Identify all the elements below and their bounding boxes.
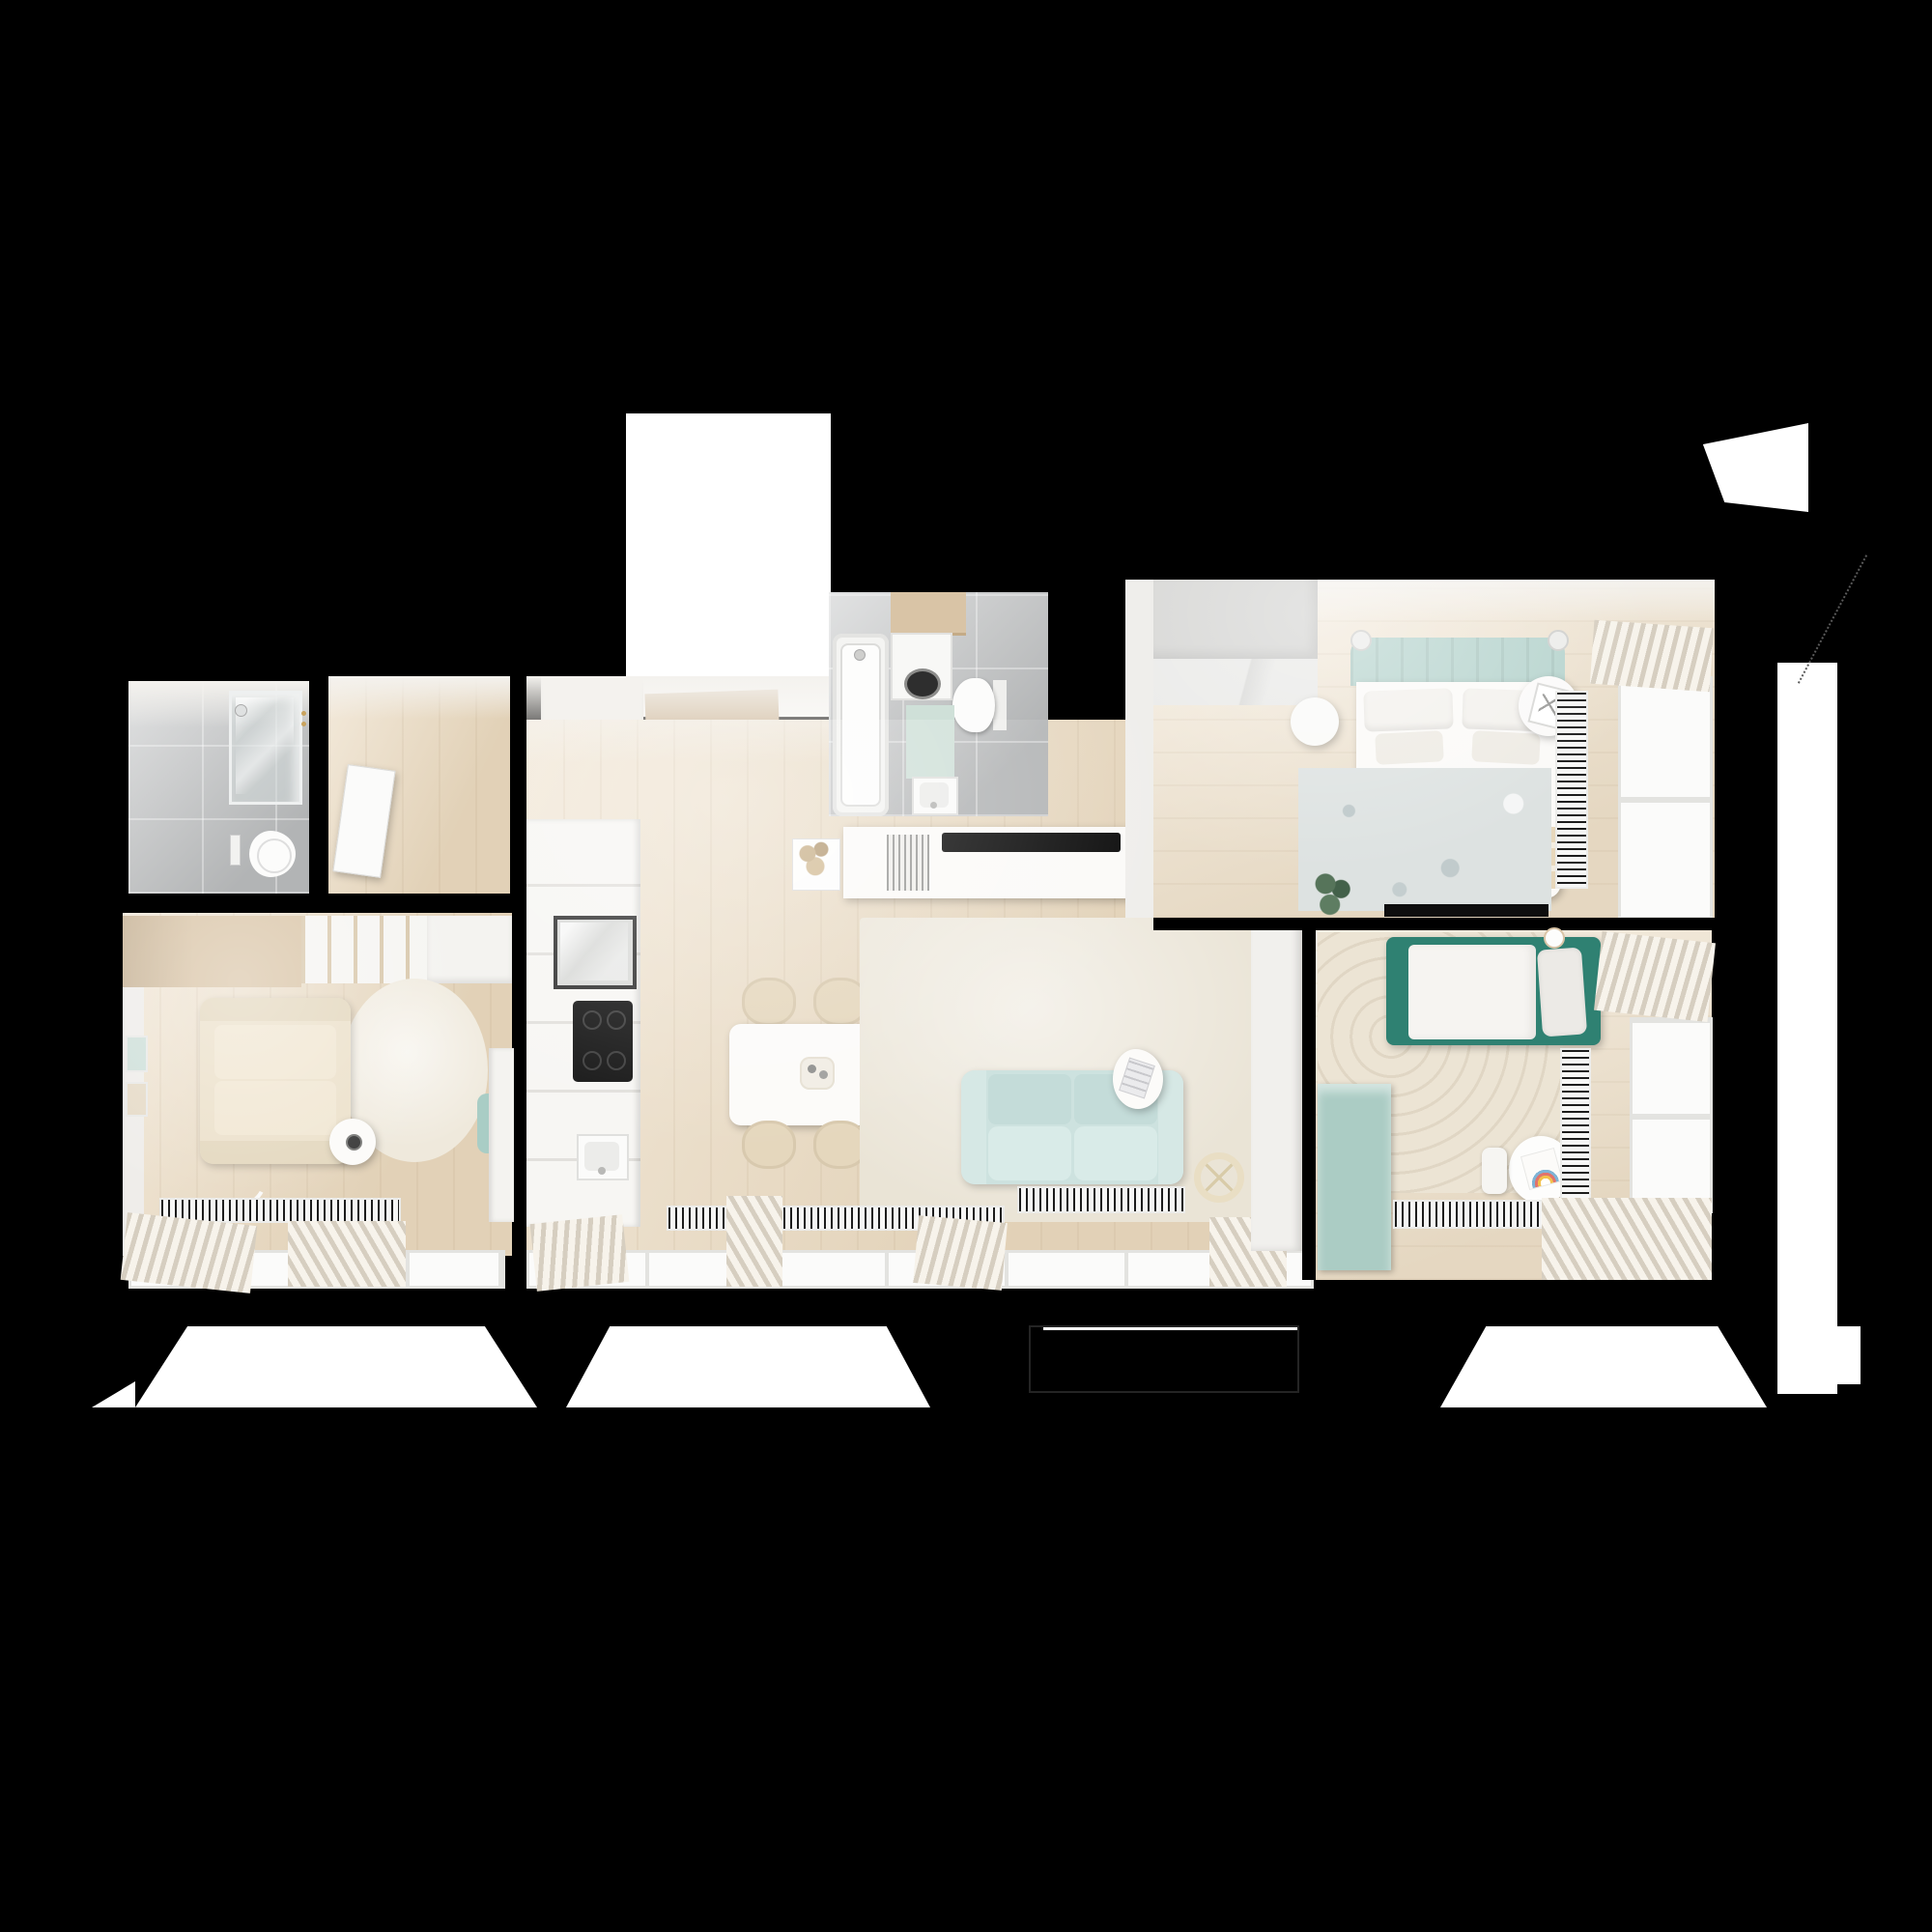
pillow-small [1375, 730, 1444, 765]
radiator [1393, 1200, 1544, 1229]
plant-icon [1310, 866, 1354, 918]
entrance-alcove [626, 413, 831, 717]
kids-bench-teal [1318, 1084, 1391, 1270]
wall-tv [1384, 904, 1548, 917]
kids-pillow [1537, 948, 1587, 1037]
dining-chair [742, 978, 796, 1026]
toilet2-bowl [952, 678, 995, 732]
curtains [913, 1215, 1008, 1291]
glass-cabinet-glint [560, 923, 628, 980]
washer-drum-icon [904, 668, 941, 699]
centerpiece-dot [808, 1065, 816, 1073]
curtains [288, 1221, 406, 1287]
office-cabinet [427, 916, 512, 983]
office-sofa-armrest [200, 998, 351, 1021]
pillow-small [1471, 730, 1541, 765]
burner-icon [607, 1051, 626, 1070]
cooktop [573, 1001, 633, 1082]
wall-frame-beige [126, 1082, 148, 1117]
office-desk [489, 1048, 514, 1222]
towel-hook-icon [301, 722, 306, 726]
bathtub-inner [840, 643, 881, 807]
pillow [1363, 688, 1453, 731]
wardrobe-grey-lower [1153, 659, 1318, 705]
plant-icon [796, 837, 835, 879]
toilet2-tank [993, 680, 1007, 730]
curtains [1542, 1198, 1712, 1280]
bedroom-divider-wall [1153, 918, 1715, 930]
tap-icon [598, 1167, 606, 1175]
tv [942, 833, 1121, 852]
bedroom-wall-face [1125, 580, 1153, 918]
radiator [1555, 691, 1588, 889]
wall-lamp-icon [1548, 630, 1569, 651]
window-kids [1630, 1017, 1713, 1213]
cup-icon [1544, 927, 1565, 949]
nightstand [1291, 697, 1339, 746]
sofa-back-cushion [988, 1074, 1071, 1124]
curtains [1590, 620, 1714, 692]
wood-shelf [891, 592, 966, 636]
edge-sliver [92, 1381, 135, 1407]
floor-plan-render [0, 0, 1932, 1932]
office-sofa-cushion [214, 1081, 336, 1135]
kids-bed-duvet [1408, 945, 1536, 1039]
hallway-wall-top [328, 676, 510, 719]
parapet-outline [1029, 1325, 1299, 1393]
curtains [1594, 931, 1716, 1022]
roof-wedge [1689, 423, 1808, 520]
right-white-strip [1777, 663, 1837, 1394]
burner-icon [607, 1010, 626, 1030]
wall-lamp-icon [1350, 630, 1372, 651]
burner-icon [582, 1051, 602, 1070]
centerpiece [800, 1057, 835, 1090]
wardrobe-grey [1153, 580, 1318, 659]
sofa-armrest [961, 1070, 986, 1184]
towel-hook-icon [301, 711, 306, 716]
wall-core [1302, 918, 1316, 1280]
wall-frame-mint [126, 1036, 148, 1072]
tap-icon [930, 802, 937, 809]
balcony-trapezoid [1440, 1326, 1767, 1407]
office-shelf-boxes [301, 916, 427, 983]
balcony-strip-right [1814, 1326, 1861, 1384]
wall-face-white [1251, 918, 1302, 1251]
floor-lamp-icon [1194, 1152, 1244, 1203]
office-sofa-cushion [214, 1025, 336, 1079]
kitchen-wall-top [526, 676, 831, 763]
speaker-grille-icon [887, 835, 929, 891]
radiator [1017, 1186, 1185, 1213]
burner-icon [582, 1010, 602, 1030]
cup-icon [346, 1134, 362, 1151]
curtains [530, 1214, 630, 1292]
shower-head-icon [235, 704, 247, 717]
toilet-seat-line [257, 838, 292, 873]
dining-chair [742, 1121, 796, 1169]
sofa-seat-cushion [988, 1126, 1071, 1180]
balcony-trapezoid [135, 1326, 537, 1407]
balcony-trapezoid [566, 1326, 930, 1407]
centerpiece-dot [819, 1070, 828, 1079]
window-bedroom [1618, 676, 1713, 920]
sofa-seat-cushion [1074, 1126, 1157, 1180]
kids-stool [1482, 1148, 1507, 1194]
office-wardrobe-wood [123, 916, 301, 987]
radiator [1560, 1048, 1591, 1222]
curtains [121, 1212, 258, 1293]
flush-plate [230, 835, 241, 866]
bath-tap-icon [854, 649, 866, 661]
curtains [726, 1196, 782, 1287]
bath-mat [906, 705, 954, 779]
bed-headboard [1350, 638, 1565, 686]
